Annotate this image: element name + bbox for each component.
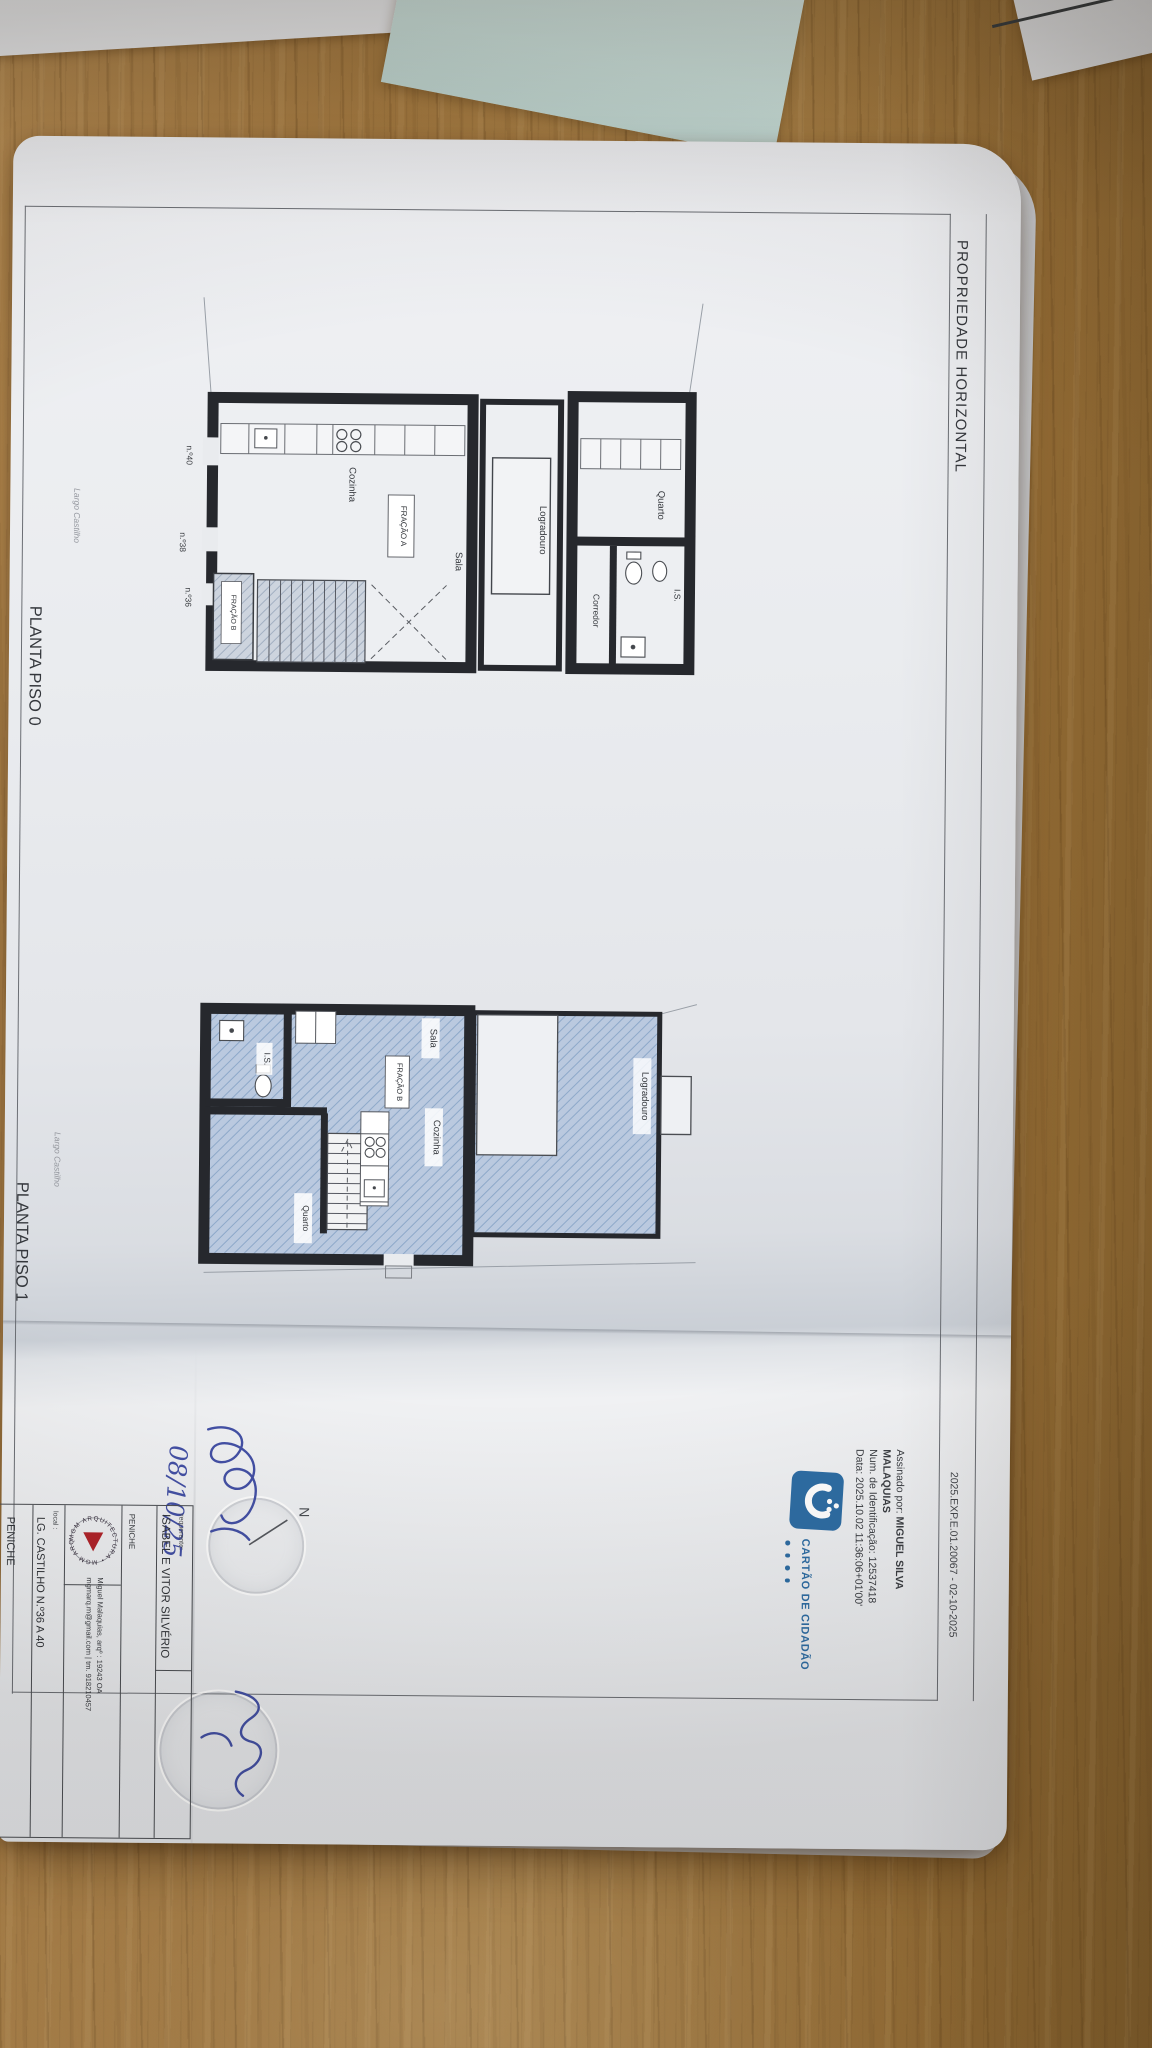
- tb-line-2: [62, 1505, 66, 1837]
- door-number-36: n.º36: [183, 587, 193, 607]
- piso1-annex-box: [661, 1076, 692, 1134]
- tb-line-4: [154, 1506, 158, 1838]
- plan-title-piso1: PLANTA PISO 1: [11, 1182, 32, 1357]
- room-label-quarto-p1: Quarto: [301, 1205, 311, 1231]
- street-label-piso1: Largo Castilho: [52, 1132, 63, 1202]
- signed-by-label: Assinado por:: [893, 1449, 906, 1516]
- architect-contact: Miguel Malaquias, arqº : 19243 OA mgmarq…: [82, 1577, 106, 1827]
- tb-line-5: [155, 1670, 191, 1672]
- local-label: local :: [51, 1511, 58, 1551]
- piso0-front-hwall: [572, 537, 690, 547]
- photo-of-floorplan-document: { "header": { "title": "PROPRIEDADE HORI…: [0, 0, 1152, 2048]
- digital-signature-block: Assinado por: MIGUEL SILVA MALAQUIAS Num…: [849, 1449, 906, 1809]
- handwritten-signature: [201, 1427, 264, 1796]
- north-arrow: N: [249, 1507, 312, 1546]
- piso1-logradouro-inner: [477, 1015, 558, 1156]
- room-label-cozinha-p1: Cozinha: [431, 1120, 442, 1156]
- piso1-sink-icon: [364, 1180, 384, 1197]
- city-small: PENICHE: [127, 1514, 137, 1574]
- floorplan-piso1: I.S. Quarto Cozinha Sala: [135, 994, 698, 1329]
- room-label-sala-p1: Sala: [428, 1029, 439, 1049]
- room-label-logradouro-p1: Logradouro: [639, 1072, 650, 1121]
- mgm-logo: MGM ARQUITECTURA • MGM ARQUITECTURA •: [68, 1515, 118, 1565]
- architect-line-2: mgmarq.m@gmail.com | tm. 918210457: [82, 1577, 95, 1827]
- room-label-corredor-p0: Corredor: [591, 594, 601, 628]
- paper-scrap-top-right: [1010, 0, 1152, 81]
- local-value: LG. CASTILHO N.º36 A 40: [32, 1517, 47, 1827]
- fracao-a-label: FRAÇÃO A: [399, 506, 408, 547]
- local-city: PENICHE: [4, 1517, 17, 1607]
- title-block: requerente: ISABEL E VITOR SILVÉRIO PENI…: [0, 1504, 194, 1840]
- room-label-is-p1: I.S.: [262, 1052, 272, 1065]
- piso0-sink-icon: [255, 429, 277, 448]
- street-label-piso0: Largo Castilho: [72, 488, 83, 558]
- signed-by-name: MIGUEL SILVA: [893, 1516, 906, 1589]
- document-title: PROPRIEDADE HORIZONTAL: [950, 240, 970, 600]
- piso1-door-gap: [384, 1254, 414, 1266]
- mgm-logo-triangle: [83, 1532, 103, 1551]
- cc-dots: [785, 1540, 790, 1582]
- process-reference: 2025.EXP.E.01.20067 - 02-10-2025: [946, 1472, 960, 1702]
- fracao-b-label-p0: FRAÇÃO B: [229, 595, 238, 631]
- fracao-b-label-p1: FRAÇÃO B: [395, 1063, 404, 1101]
- room-label-is-p0: I.S.: [672, 589, 682, 602]
- header-band-outer-line: [973, 214, 987, 1701]
- room-label-logradouro-p0: Logradouro: [537, 506, 548, 555]
- requerente-name: ISABEL E VITOR SILVÉRIO: [158, 1514, 171, 1666]
- cartao-cidadao-label: CARTÃO DE CIDADÃO: [798, 1539, 812, 1719]
- document-sheet: PROPRIEDADE HORIZONTAL 2025.EXP.E.01.200…: [0, 136, 1021, 1851]
- frame-top-border: [25, 206, 951, 215]
- room-label-cozinha-p0: Cozinha: [346, 467, 357, 503]
- plan-title-piso0: PLANTA PISO 0: [24, 606, 44, 766]
- boundary-lines: [203, 297, 703, 399]
- piso0-front-block-walls: [571, 397, 691, 670]
- piso0-closet: [581, 439, 681, 470]
- cartao-cidadao-icon: [788, 1469, 846, 1532]
- requerente-label: requerente:: [176, 1514, 184, 1664]
- piso1-quarto-wall: [205, 1106, 327, 1115]
- piso0-front-vwall: [609, 546, 617, 669]
- floorplan-piso0: Cozinha FRAÇÃO A Sala FRAÇÃO B Logradour…: [140, 287, 704, 712]
- door-number-38: n.º38: [178, 532, 188, 552]
- frame-left-border: [12, 206, 26, 1694]
- piso1-closet: [296, 1011, 336, 1043]
- tb-line-3: [119, 1506, 123, 1838]
- teal-paper-sheet: [381, 0, 815, 158]
- door-number-40: n.º40: [185, 445, 195, 465]
- room-label-sala-p0: Sala: [453, 552, 464, 572]
- architect-line-1: Miguel Malaquias, arqº : 19243 OA: [93, 1577, 106, 1827]
- piso1-bath-vwall: [283, 1009, 292, 1105]
- piso1-stoop: [386, 1266, 412, 1278]
- north-label: N: [296, 1507, 312, 1517]
- room-label-quarto-p0: Quarto: [655, 491, 666, 520]
- piso1-bath-hwall: [205, 1098, 291, 1107]
